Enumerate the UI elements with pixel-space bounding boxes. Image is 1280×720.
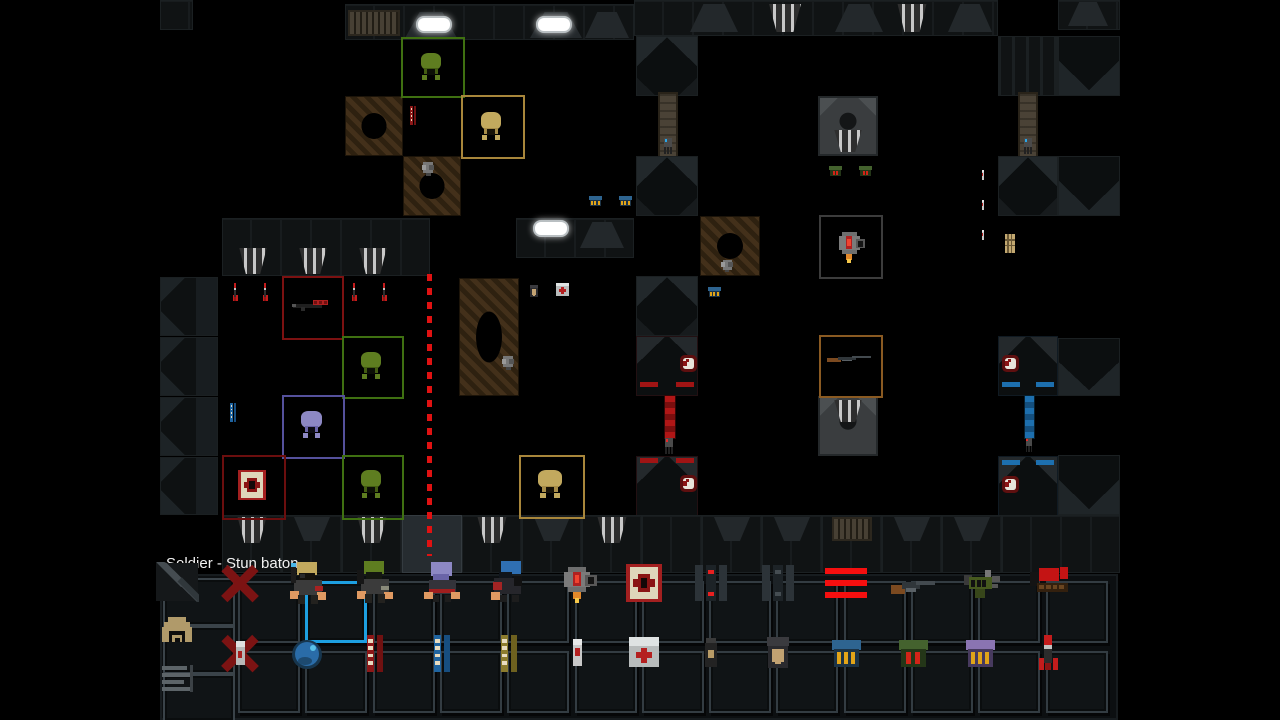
explosive-crate-sprite[interactable] (231, 463, 273, 507)
ammo-box-green-item[interactable] (824, 161, 847, 181)
wall-machine[interactable] (498, 352, 518, 374)
door-emblem[interactable] (677, 352, 700, 375)
stripes-blue-icon (223, 398, 243, 426)
wall-machine[interactable] (718, 256, 736, 276)
pixel (362, 374, 367, 379)
door-control[interactable] (1019, 134, 1037, 158)
soldier-purple-icon (415, 556, 469, 610)
shotgun-icon (822, 344, 876, 370)
pixel (298, 657, 312, 665)
wall-tile[interactable] (998, 36, 1058, 96)
explosives-icon (1021, 556, 1075, 610)
soldier-tan-sprite[interactable] (472, 105, 510, 147)
door-control[interactable] (1021, 434, 1037, 456)
pixel (487, 129, 495, 135)
pixel (719, 565, 726, 601)
pixel (291, 563, 295, 567)
rocket-item[interactable] (377, 278, 391, 306)
pixel (411, 112, 413, 114)
pixel (1008, 359, 1011, 362)
pixel (671, 447, 673, 454)
wall-tile[interactable] (998, 156, 1058, 216)
pixel (668, 447, 670, 454)
pixel (1060, 567, 1068, 579)
pixel (982, 170, 984, 172)
pixel (310, 645, 316, 651)
soldier-green-sprite[interactable] (352, 345, 390, 385)
helm-tan-icon (472, 105, 510, 147)
pixel (362, 493, 367, 498)
wall-tile[interactable] (1058, 36, 1120, 96)
pixel (540, 493, 546, 498)
machine-gun-sprite[interactable] (288, 290, 336, 320)
ammo-box-blue-item[interactable] (614, 191, 637, 211)
lmg-icon (288, 290, 336, 320)
ammo-purple-icon (953, 626, 1007, 680)
pixel (314, 301, 317, 304)
capsule-med-icon (550, 626, 604, 680)
pixel (628, 201, 630, 206)
pixel (863, 171, 865, 176)
pixel (906, 588, 915, 592)
pixel (575, 648, 579, 656)
pixel (664, 147, 666, 154)
pixel (308, 427, 315, 433)
wall-machine[interactable] (418, 158, 438, 180)
pixel (575, 575, 580, 583)
pixel (851, 652, 856, 664)
pixel (559, 289, 566, 292)
pixel (509, 359, 514, 365)
pixel (1049, 568, 1059, 581)
pixel (710, 292, 712, 297)
ammo-green-icon (886, 626, 940, 680)
ammo-green-icon (854, 161, 877, 181)
helm-green-icon (352, 345, 390, 385)
shotgun-sprite[interactable] (822, 344, 876, 370)
pixel (366, 572, 382, 579)
shotgun-icon (886, 556, 940, 610)
blue-striped-item[interactable] (223, 398, 243, 426)
helm-green-icon (352, 463, 390, 505)
ammo-box-blue-item[interactable] (584, 191, 607, 211)
grenade-dark-icon (684, 626, 738, 680)
pixel (598, 201, 600, 206)
pixel (978, 652, 983, 664)
pixel (906, 652, 911, 664)
capsule-item[interactable] (977, 225, 988, 245)
pixel (695, 565, 702, 601)
pixel (901, 649, 927, 667)
pixel (236, 641, 245, 647)
pixel (725, 270, 730, 273)
pixel (852, 356, 870, 358)
blue-door-light (1002, 382, 1020, 387)
pixel (546, 487, 554, 493)
pixel (591, 201, 593, 206)
wall-tile[interactable] (160, 0, 193, 30)
pixel (665, 447, 667, 454)
pixel (315, 586, 322, 591)
turret-icon (827, 222, 871, 270)
ammo-box-blue-item[interactable] (703, 282, 726, 302)
ceiling-lamp[interactable] (416, 16, 452, 33)
wall-tile[interactable] (1058, 156, 1120, 216)
pixel (319, 301, 322, 304)
pixel (502, 646, 506, 650)
pixel (833, 171, 835, 176)
pixel (708, 570, 715, 574)
wall-tile[interactable] (1058, 455, 1120, 515)
soldier-tan-icon (281, 557, 335, 611)
pixel (365, 594, 372, 602)
pixel (1025, 139, 1027, 142)
pixel (236, 295, 237, 301)
pixel (982, 203, 983, 206)
stripes-red-icon (403, 101, 423, 129)
wall-tile[interactable] (634, 0, 998, 36)
medkit-icon (551, 278, 574, 301)
pixel (1039, 585, 1044, 589)
tool-structure-icon (155, 610, 199, 650)
pixel (1031, 446, 1033, 452)
rocket-item[interactable] (258, 278, 272, 306)
pixel (573, 639, 582, 645)
pixel (502, 661, 506, 665)
emblem-icon (677, 352, 700, 375)
pixel (982, 173, 983, 176)
pixel (982, 200, 984, 202)
pixel (1008, 480, 1011, 483)
capsule-med-icon (977, 225, 988, 245)
pixel (368, 654, 372, 658)
pixel (429, 165, 434, 171)
emblem-icon (677, 472, 700, 495)
pixel (721, 262, 724, 267)
pixel (512, 595, 519, 602)
pixel (982, 580, 986, 587)
pixel (866, 171, 868, 176)
pixel (844, 652, 849, 664)
soldier-tan-sprite[interactable] (529, 463, 571, 505)
pixel (982, 230, 984, 232)
pixel (621, 201, 623, 206)
wall-tile[interactable] (636, 156, 698, 216)
pixel (992, 584, 998, 589)
ceiling-lamp[interactable] (533, 220, 569, 237)
pixel (1005, 239, 1015, 241)
pixel (1053, 585, 1058, 589)
stripes-red-icon (348, 626, 402, 680)
pixel (385, 295, 386, 301)
pixel (162, 673, 192, 677)
pixel (238, 651, 242, 658)
capsule-med-icon (977, 165, 988, 185)
pixel (384, 592, 392, 599)
wall-tile[interactable] (636, 36, 698, 96)
pixel (1059, 585, 1064, 589)
pixel (641, 578, 648, 587)
pixel (971, 580, 975, 587)
pouch-item[interactable] (524, 280, 544, 302)
pixel (916, 581, 934, 585)
pixel (234, 297, 236, 301)
pixel (190, 665, 193, 692)
door-emblem[interactable] (677, 472, 700, 495)
pixel (368, 661, 372, 665)
wall-tile[interactable] (636, 276, 698, 336)
door-red-icon (684, 556, 738, 610)
rocket-icon (377, 278, 391, 306)
pixel (708, 650, 714, 658)
red-dashed-boundary (427, 274, 432, 556)
pixel (422, 75, 427, 80)
pixel (775, 570, 782, 574)
soldier-purple-sprite[interactable] (293, 404, 330, 444)
red-door-light (676, 458, 694, 463)
pixel (435, 75, 440, 80)
wall-tile[interactable] (160, 397, 218, 456)
emblem-icon (999, 352, 1022, 375)
laser-door-blue (1025, 396, 1034, 438)
soldier-blue-icon (482, 556, 536, 610)
pixel (162, 666, 187, 670)
pixel (588, 577, 594, 584)
pixel (264, 297, 266, 301)
pixel (514, 576, 522, 586)
red-x-icon (213, 556, 267, 610)
helm-purple-icon (293, 404, 330, 444)
pixel (495, 135, 500, 140)
blue-door-light (1036, 382, 1054, 387)
list-tool[interactable] (163, 674, 235, 720)
pixel (629, 637, 659, 645)
pixel (1005, 245, 1015, 247)
pixel (292, 304, 296, 306)
pixel (775, 592, 782, 596)
pixel (367, 368, 375, 374)
pixel (624, 201, 626, 206)
pixel (231, 405, 233, 407)
wall-tile[interactable] (1058, 338, 1120, 396)
pixel (533, 294, 536, 296)
door-control[interactable] (659, 134, 677, 158)
pixel (381, 586, 389, 590)
wall-tile[interactable] (160, 277, 218, 336)
tool-hatch-icon (155, 562, 199, 602)
pixel (666, 439, 668, 442)
soldier-green-icon (348, 556, 402, 610)
pixel (686, 479, 689, 482)
crate-red-icon (617, 556, 671, 610)
pixel (708, 592, 715, 596)
door-emblem[interactable] (999, 473, 1022, 496)
ammo-green-icon (824, 161, 847, 181)
pixel (367, 487, 375, 493)
ammo-blue-icon (614, 191, 637, 211)
pixel (324, 301, 327, 304)
turret-sprite[interactable] (827, 222, 871, 270)
pixel (971, 652, 976, 664)
pixel (411, 115, 413, 117)
ammo-blue-icon (703, 282, 726, 302)
pixel (231, 409, 233, 411)
pixel (375, 493, 380, 498)
pixel (975, 589, 985, 598)
door-emblem[interactable] (999, 352, 1022, 375)
rocket-icon (258, 278, 272, 306)
pixel (977, 580, 981, 587)
pixel (368, 646, 372, 650)
pixel (1044, 635, 1052, 645)
map-canvas[interactable] (0, 0, 1280, 575)
pixel (435, 654, 439, 658)
pixel (175, 638, 180, 642)
tool-list-icon (155, 658, 199, 698)
pixel (383, 297, 385, 301)
pixel (444, 635, 450, 671)
door-machine-red-icon (1021, 434, 1037, 456)
medkit-icon (617, 626, 671, 680)
pixel (713, 292, 715, 297)
red-striped-item[interactable] (403, 101, 423, 129)
door-control[interactable] (660, 434, 678, 458)
level-editor: Soldier - Stun baton (0, 0, 1280, 720)
capsule-item[interactable] (977, 165, 988, 185)
helm-tan-icon (529, 463, 571, 505)
pixel (554, 493, 560, 498)
pixel (1044, 649, 1052, 663)
soldier-green-sprite[interactable] (352, 463, 390, 505)
soldier-green-sprite[interactable] (412, 46, 450, 86)
pixel (667, 147, 669, 154)
pixel (375, 374, 380, 379)
door-grey-icon (751, 556, 805, 610)
blue-door-light (1036, 460, 1054, 465)
pixel (985, 652, 990, 664)
pixel (511, 635, 517, 671)
rocket-item[interactable] (228, 278, 242, 306)
helm-green-icon (412, 46, 450, 86)
pixel (377, 635, 383, 671)
wall-tile[interactable] (459, 278, 519, 396)
wicker-item[interactable] (1000, 229, 1020, 258)
pixel (556, 283, 569, 286)
pixel (435, 661, 439, 665)
pixel (427, 69, 435, 75)
capsule-med-icon (977, 195, 988, 215)
pixel (311, 595, 318, 603)
emblem-icon (999, 473, 1022, 496)
red-door-light (640, 382, 658, 387)
pixel (249, 481, 254, 489)
pixel (315, 433, 320, 438)
pixel (303, 433, 308, 438)
pixel (1024, 147, 1026, 154)
pixel (837, 652, 842, 664)
pixel (435, 646, 439, 650)
pixel (915, 652, 920, 664)
pixel (665, 139, 667, 142)
pixel (728, 262, 733, 267)
pixel (858, 241, 863, 247)
pixel (1039, 658, 1044, 669)
ceiling-lamp[interactable] (536, 16, 572, 33)
pixel (298, 595, 305, 603)
machine-grey-icon (418, 158, 438, 180)
medkit-item[interactable] (551, 278, 574, 301)
pixel (1026, 439, 1028, 442)
ammo-blue-icon (584, 191, 607, 211)
pixel (1045, 663, 1051, 670)
gun-green-icon (953, 556, 1007, 610)
pixel (162, 680, 184, 684)
pixel (985, 570, 990, 577)
pixel (482, 135, 487, 140)
wall-plate (832, 517, 872, 541)
pixel (162, 687, 192, 691)
pixel (301, 307, 306, 311)
capsule-item[interactable] (977, 195, 988, 215)
pixel (234, 403, 236, 422)
pixel (1053, 658, 1058, 669)
pixel (762, 565, 769, 601)
orb-blue-icon (280, 626, 334, 680)
ammo-blue-icon (819, 626, 873, 680)
pixel (842, 360, 851, 362)
pixel (992, 576, 999, 581)
pixel (445, 595, 452, 602)
pixel (357, 570, 364, 584)
ammo-box-green-item[interactable] (854, 161, 877, 181)
pixel (1027, 147, 1029, 154)
pixel (414, 106, 416, 125)
pixel (717, 292, 719, 297)
pixel (1046, 585, 1051, 589)
pixel (231, 412, 233, 414)
pixel (836, 171, 838, 176)
wall-tile[interactable] (160, 337, 218, 396)
pixel (825, 592, 867, 598)
rocket-icon (228, 278, 242, 306)
pixel (1030, 147, 1032, 154)
pixel (500, 595, 507, 602)
wall-tile[interactable] (160, 457, 218, 515)
pixel (670, 147, 672, 154)
pixel (575, 598, 580, 603)
door-machine-red-icon (660, 434, 678, 458)
pixel (594, 201, 596, 206)
pixel (300, 574, 305, 578)
pixel (266, 295, 267, 301)
pixel (502, 654, 506, 658)
wall-tile[interactable] (345, 96, 403, 156)
red-door-light (640, 458, 658, 463)
pixel (291, 565, 295, 583)
pixel (502, 639, 506, 643)
machine-grey-icon (718, 256, 736, 276)
rocket-item[interactable] (347, 278, 361, 306)
pixel (847, 259, 851, 263)
slot-rocket[interactable] (1046, 651, 1108, 713)
pixel (378, 594, 385, 602)
pixel (502, 359, 506, 365)
blue-door-light (1002, 460, 1020, 465)
pixel (636, 652, 652, 658)
pixel (825, 580, 867, 586)
machine-grey-icon (498, 352, 518, 374)
rocket-icon (1021, 626, 1075, 680)
